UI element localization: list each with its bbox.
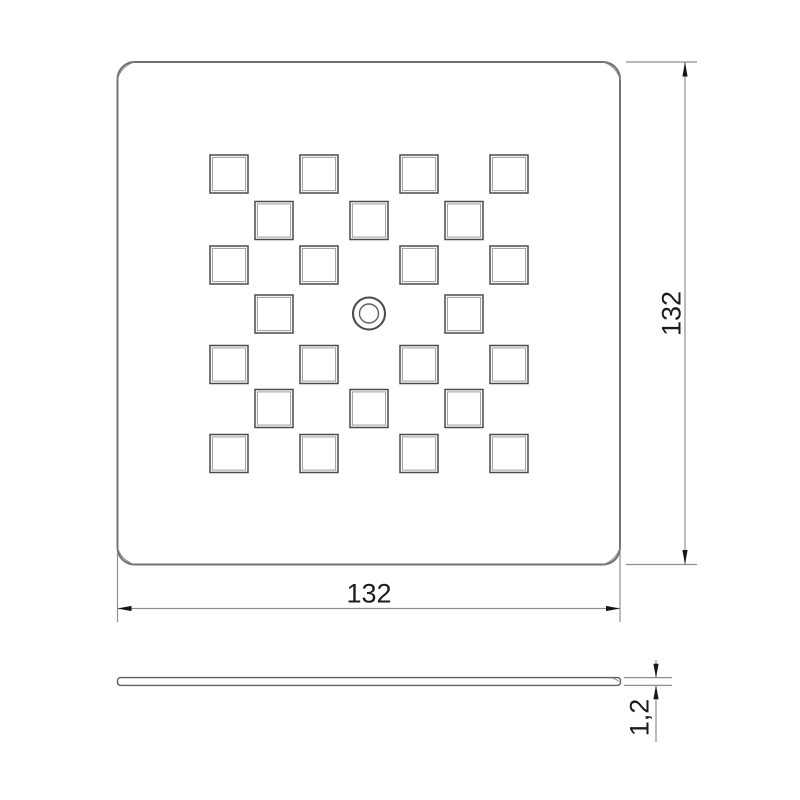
square-hole xyxy=(490,435,528,473)
arrow-down-to-edge-icon xyxy=(653,664,658,678)
width-dimension-label: 132 xyxy=(346,579,391,609)
side-profile xyxy=(118,678,621,686)
square-hole xyxy=(350,202,388,240)
height-dimension-label: 132 xyxy=(657,291,687,336)
square-hole xyxy=(255,295,293,333)
front-view xyxy=(118,62,621,565)
square-hole xyxy=(300,246,338,284)
square-hole xyxy=(210,155,248,193)
side-view xyxy=(118,678,621,686)
square-hole xyxy=(210,246,248,284)
height-dimension: 132 xyxy=(626,62,697,565)
arrow-down-icon xyxy=(682,550,687,565)
thickness-dimension-label: 1,2 xyxy=(625,699,655,737)
arrow-up-to-edge-icon xyxy=(653,685,658,699)
square-hole xyxy=(255,390,293,428)
square-hole xyxy=(445,295,483,333)
center-hole-outer-circle xyxy=(353,298,385,330)
square-hole xyxy=(300,346,338,384)
square-hole xyxy=(400,346,438,384)
square-hole xyxy=(490,346,528,384)
arrow-up-icon xyxy=(682,62,687,77)
arrow-left-icon xyxy=(118,606,132,611)
arrow-right-icon xyxy=(606,606,620,611)
square-hole xyxy=(445,390,483,428)
square-hole xyxy=(445,202,483,240)
square-hole xyxy=(210,435,248,473)
square-hole xyxy=(400,246,438,284)
square-hole xyxy=(300,155,338,193)
square-hole xyxy=(300,435,338,473)
square-hole xyxy=(400,435,438,473)
thickness-dimension: 1,2 xyxy=(624,660,672,742)
square-hole xyxy=(255,202,293,240)
square-hole xyxy=(490,246,528,284)
square-hole xyxy=(210,346,248,384)
square-hole xyxy=(490,155,528,193)
square-hole xyxy=(400,155,438,193)
square-hole xyxy=(350,390,388,428)
technical-drawing: 132 132 1,2 xyxy=(0,0,800,800)
